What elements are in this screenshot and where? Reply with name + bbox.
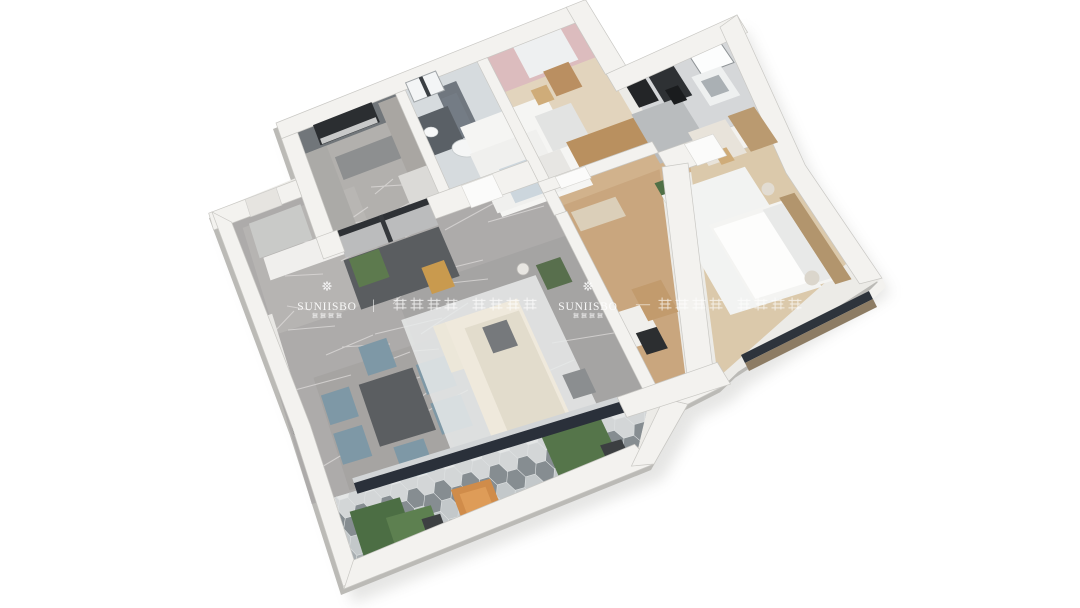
svg-text:SUNIISBO: SUNIISBO bbox=[558, 301, 617, 313]
svg-text:|: | bbox=[372, 298, 375, 313]
svg-text:SUNIISBO: SUNIISBO bbox=[297, 301, 356, 313]
svg-text:—: — bbox=[635, 297, 651, 312]
